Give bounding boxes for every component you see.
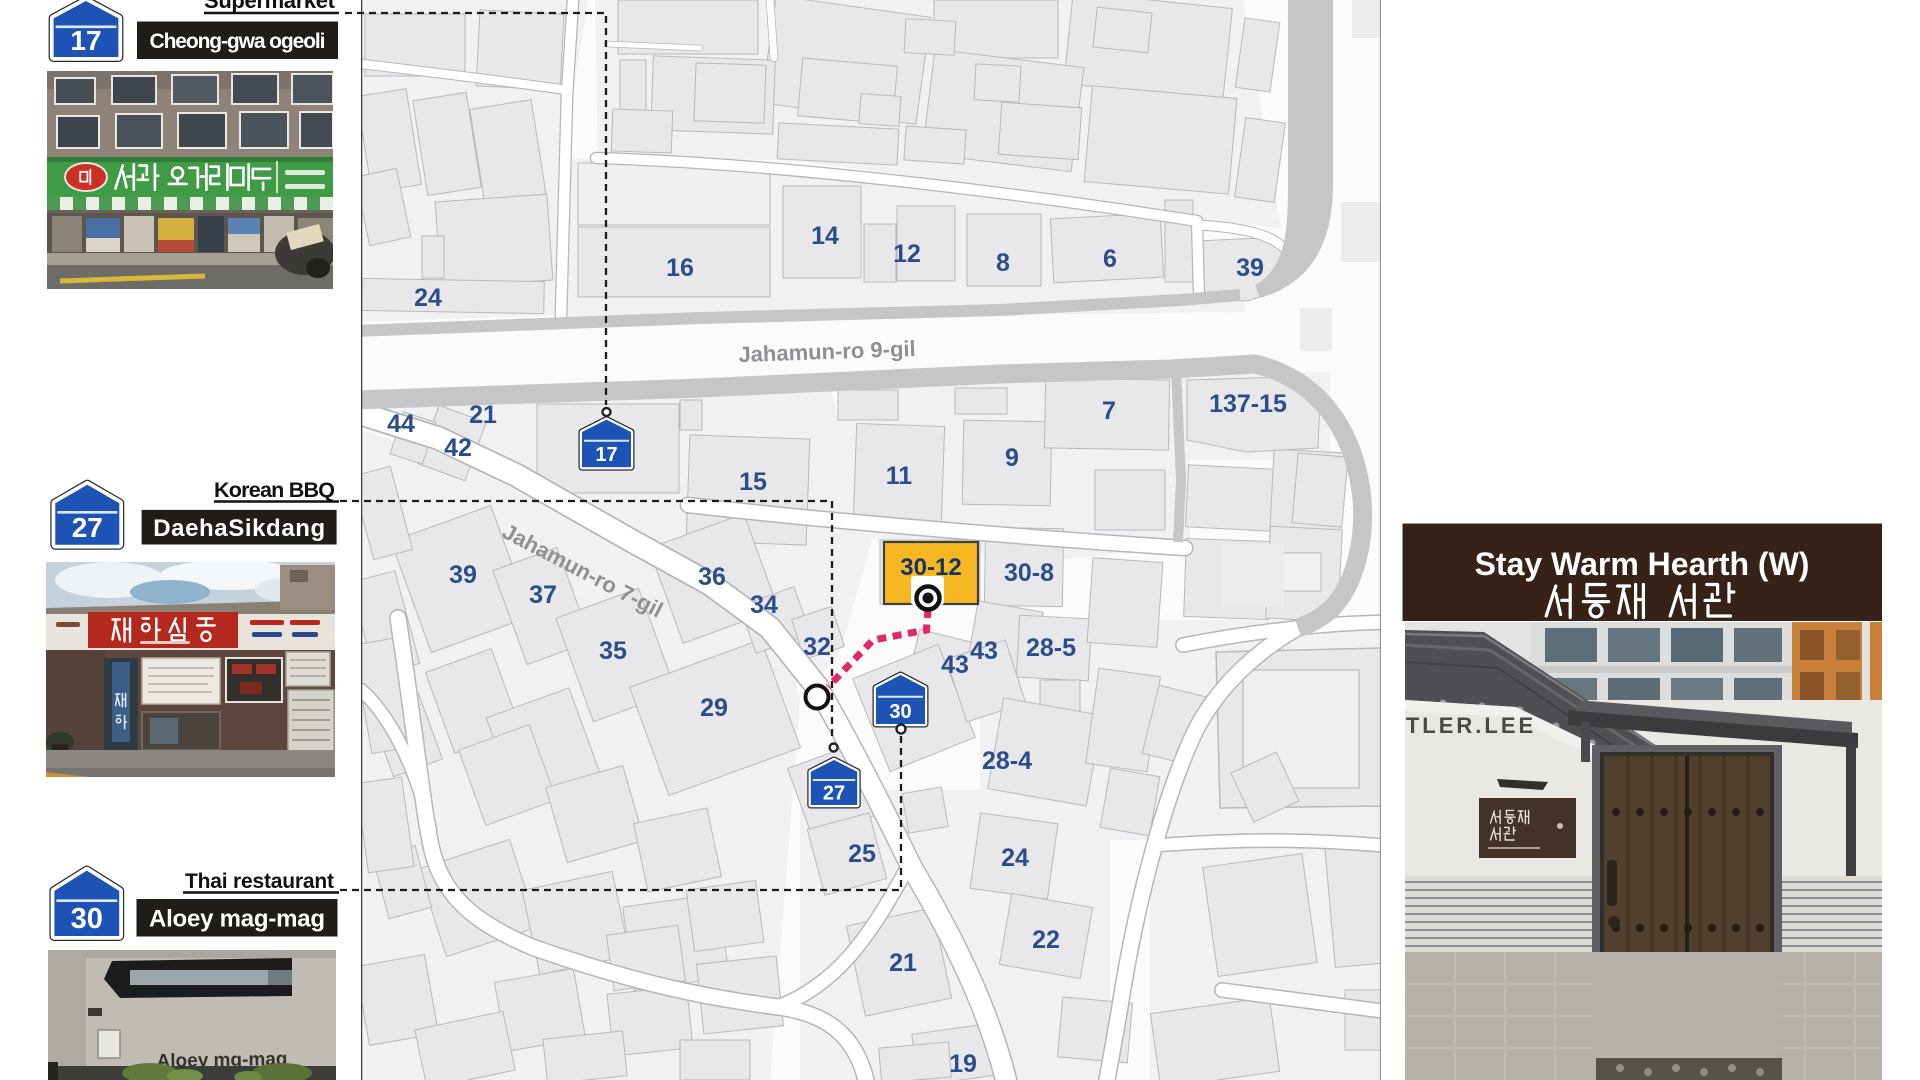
svg-text:Korean BBQ: Korean BBQ [214,478,335,502]
svg-text:21: 21 [889,949,917,977]
svg-text:39: 39 [1236,254,1264,282]
svg-text:11: 11 [886,462,913,490]
svg-text:28-4: 28-4 [982,747,1032,775]
svg-text:30: 30 [71,903,103,935]
svg-text:16: 16 [666,254,694,282]
svg-text:17: 17 [70,25,101,56]
svg-text:15: 15 [739,468,767,496]
svg-text:21: 21 [469,401,497,429]
svg-text:24: 24 [414,284,442,312]
svg-text:42: 42 [444,434,472,462]
svg-text:43: 43 [941,651,969,679]
svg-text:30: 30 [889,701,911,723]
svg-text:Supermarket: Supermarket [204,0,336,13]
svg-text:29: 29 [700,694,728,722]
svg-text:34: 34 [750,591,778,619]
svg-text:14: 14 [811,222,839,250]
svg-text:Cheong-gwa ogeoli: Cheong-gwa ogeoli [150,30,326,53]
svg-text:TLER.LEE: TLER.LEE [1406,713,1536,738]
svg-text:Stay Warm Hearth (W): Stay Warm Hearth (W) [1475,546,1810,582]
svg-text:17: 17 [595,444,617,466]
svg-text:43: 43 [970,637,998,665]
svg-text:8: 8 [996,249,1010,277]
svg-text:30-8: 30-8 [1004,559,1054,587]
svg-text:Aloey mag-mag: Aloey mag-mag [149,906,325,933]
svg-text:32: 32 [803,633,831,661]
svg-text:12: 12 [893,240,921,268]
svg-text:39: 39 [449,561,477,589]
svg-text:DaehaSikdang: DaehaSikdang [153,515,325,542]
svg-text:6: 6 [1103,245,1117,273]
svg-text:24: 24 [1001,844,1029,872]
svg-text:25: 25 [848,840,876,868]
svg-text:28-5: 28-5 [1026,634,1076,662]
svg-text:22: 22 [1032,926,1060,954]
svg-text:44: 44 [387,410,415,438]
svg-text:137-15: 137-15 [1209,390,1287,418]
svg-text:36: 36 [698,563,726,591]
svg-text:37: 37 [529,581,557,609]
svg-text:35: 35 [599,637,627,665]
svg-text:7: 7 [1102,397,1116,425]
svg-text:Thai restaurant: Thai restaurant [185,870,334,893]
svg-text:9: 9 [1005,444,1019,472]
svg-text:19: 19 [949,1050,977,1078]
svg-text:27: 27 [823,782,845,804]
svg-text:27: 27 [72,512,103,543]
